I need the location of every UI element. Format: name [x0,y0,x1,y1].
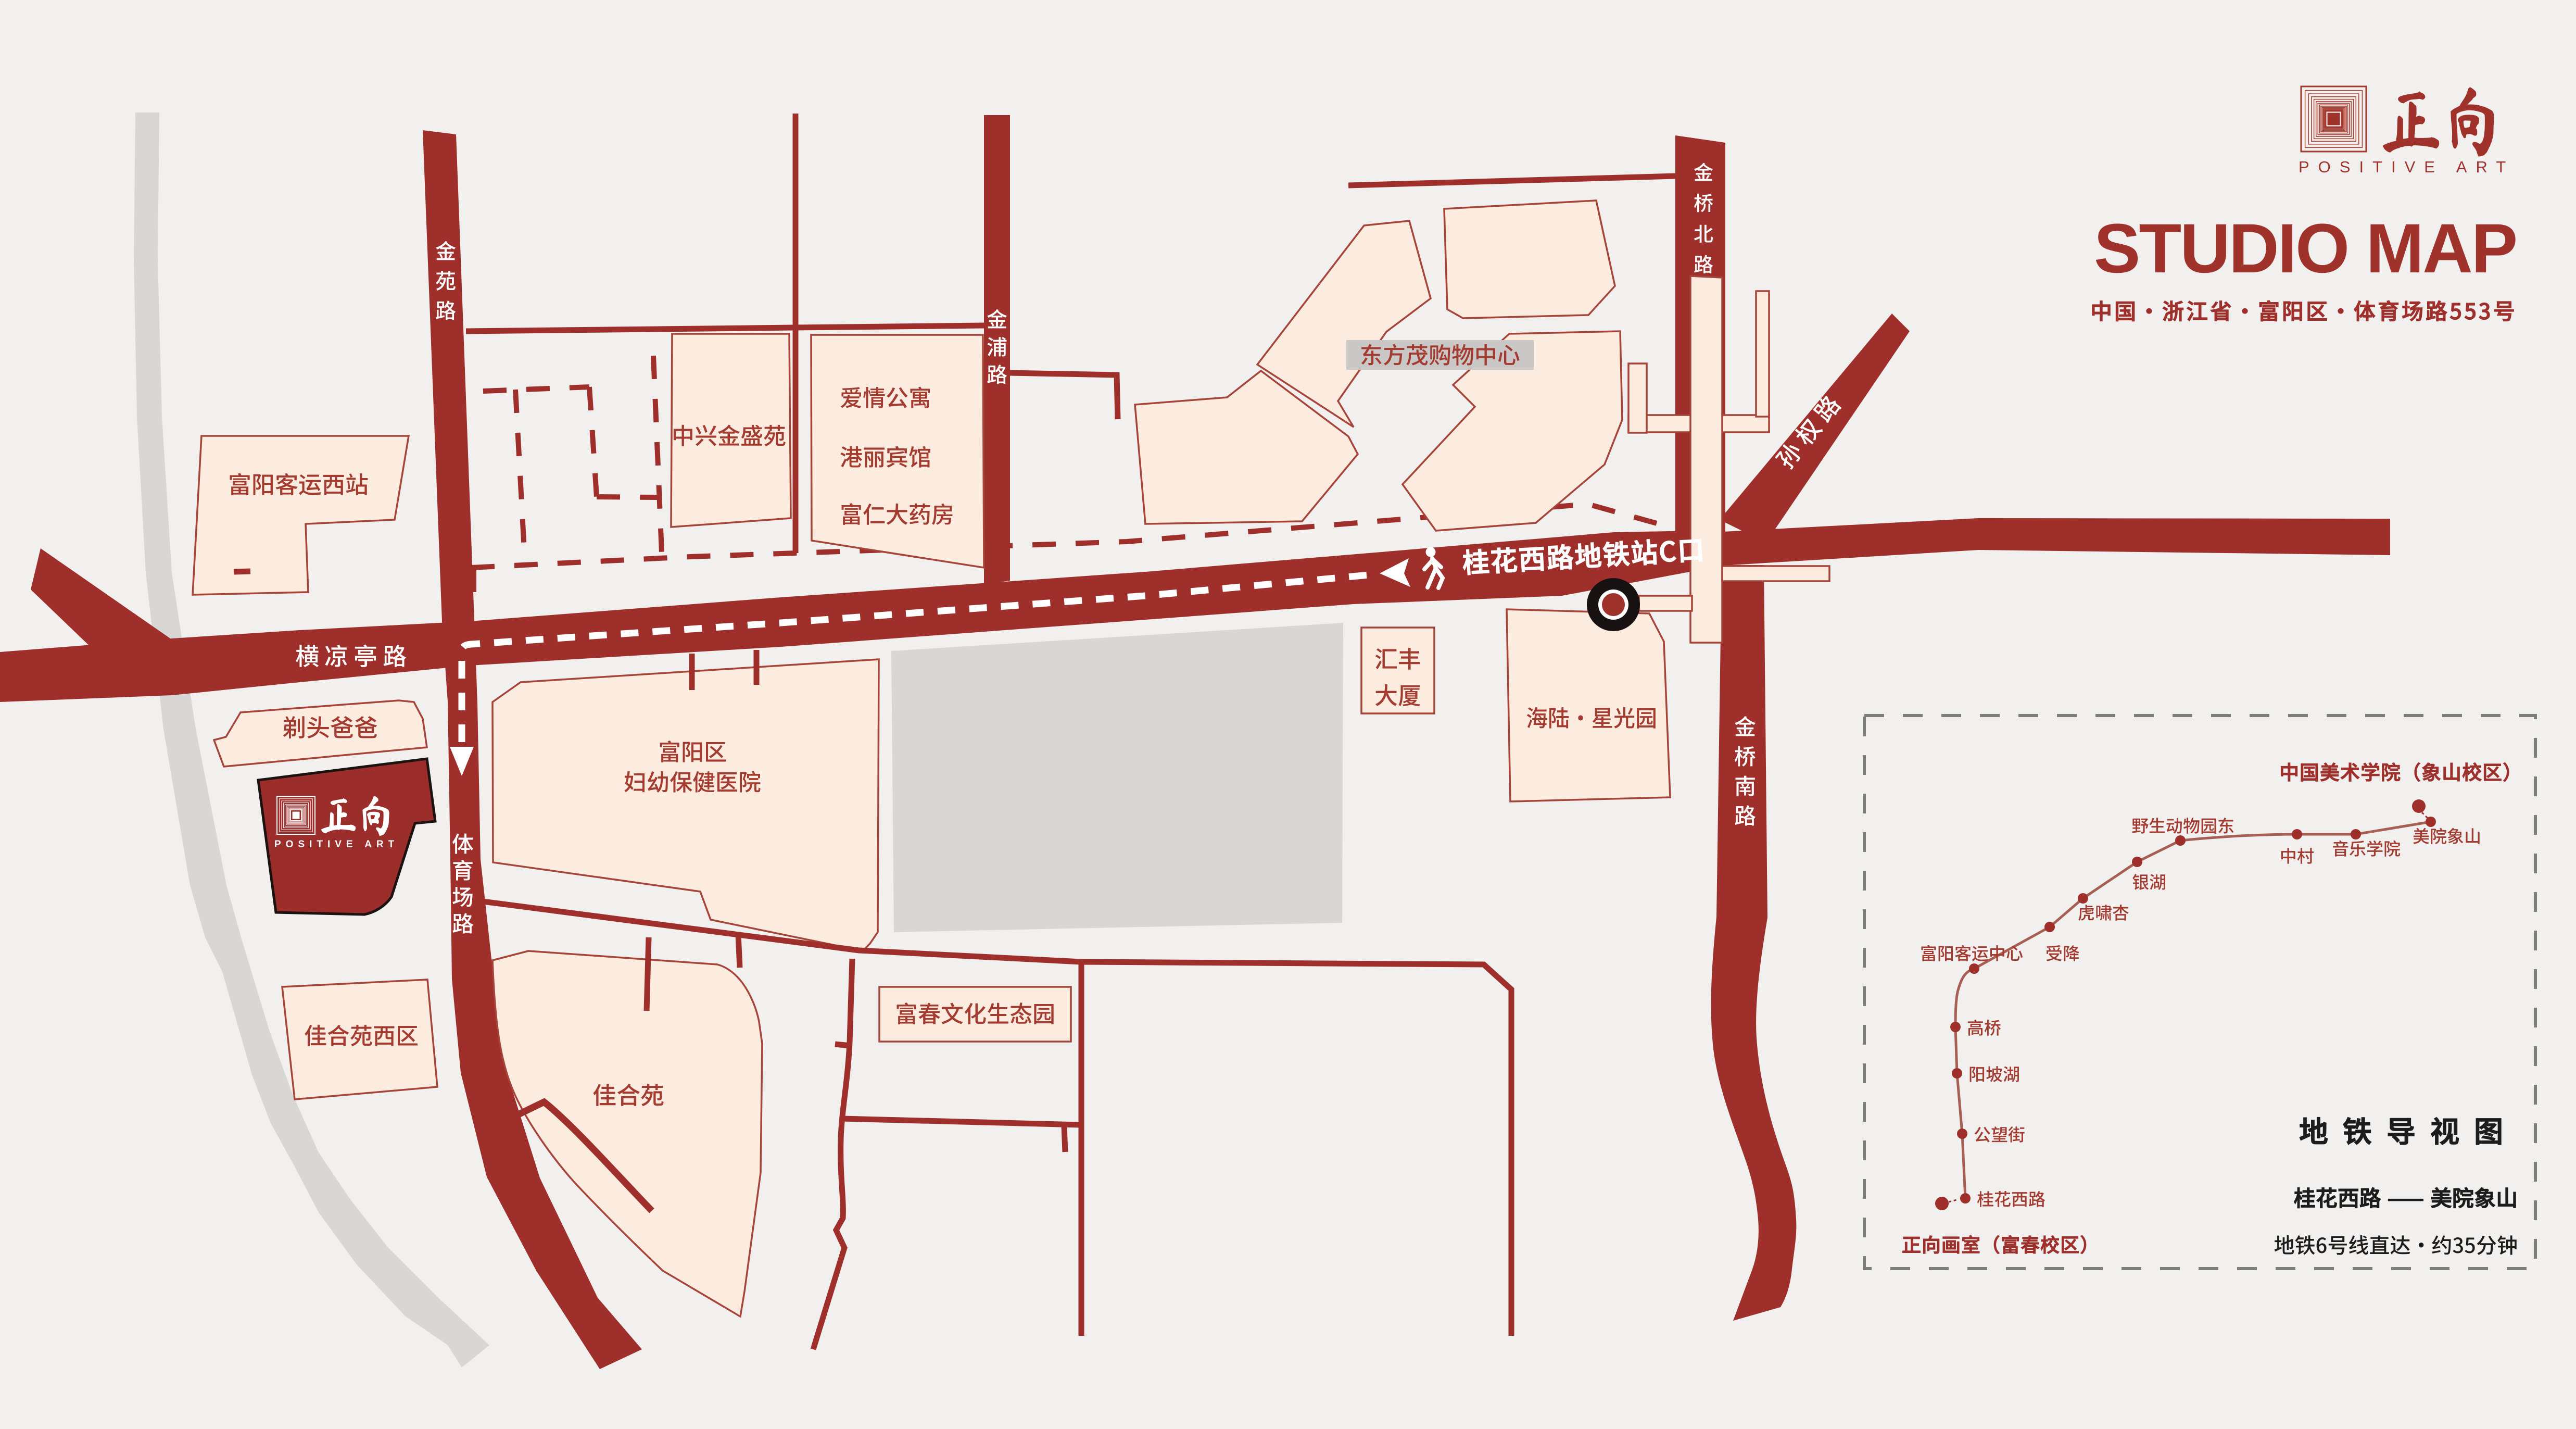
svg-text:银湖: 银湖 [2132,869,2166,894]
svg-text:地铁6号线直达·约35分钟: 地铁6号线直达·约35分钟 [2274,1229,2518,1259]
svg-text:路: 路 [1734,799,1756,831]
svg-text:虎啸杏: 虎啸杏 [2078,899,2129,924]
svg-text:公望街: 公望街 [1974,1121,2025,1146]
svg-text:横凉亭路: 横凉亭路 [295,638,412,672]
svg-text:美院象山: 美院象山 [2413,823,2481,848]
svg-text:富春文化生态园: 富春文化生态园 [895,996,1055,1029]
svg-text:地铁导视图: 地铁导视图 [2299,1109,2518,1151]
svg-text:海陆·星光园: 海陆·星光园 [1526,700,1657,733]
svg-text:苑: 苑 [435,265,456,295]
svg-text:金: 金 [1734,710,1756,742]
svg-text:东方茂购物中心: 东方茂购物中心 [1360,337,1520,370]
svg-text:中国·浙江省·富阳区·体育场路553号: 中国·浙江省·富阳区·体育场路553号 [2090,294,2517,326]
svg-text:北: 北 [1694,218,1713,247]
svg-text:中兴金盛苑: 中兴金盛苑 [672,418,786,451]
svg-text:南: 南 [1734,769,1756,801]
svg-text:富阳客运西站: 富阳客运西站 [228,466,369,500]
svg-text:桂花西路 —— 美院象山: 桂花西路 —— 美院象山 [2293,1181,2518,1213]
svg-text:中村: 中村 [2280,843,2314,868]
svg-text:妇幼保健医院: 妇幼保健医院 [624,764,761,797]
svg-text:剃头爸爸: 剃头爸爸 [282,709,378,744]
svg-text:富仁大药房: 富仁大药房 [840,496,954,530]
svg-text:正向: 正向 [2380,81,2503,159]
svg-text:富阳客运中心: 富阳客运中心 [1920,940,2023,965]
svg-text:爱情公寓: 爱情公寓 [840,380,931,413]
svg-text:路: 路 [1694,249,1713,278]
svg-text:POSITIVE ART: POSITIVE ART [274,839,399,850]
svg-text:路: 路 [435,294,456,324]
svg-text:高桥: 高桥 [1967,1014,2001,1039]
svg-text:大厦: 大厦 [1374,677,1421,711]
svg-text:音乐学院: 音乐学院 [2332,835,2401,860]
svg-text:桥: 桥 [1734,739,1756,771]
svg-text:港丽宾馆: 港丽宾馆 [840,439,931,472]
svg-text:正向: 正向 [320,793,395,837]
svg-text:路: 路 [452,907,474,938]
svg-text:野生动物园东: 野生动物园东 [2131,812,2234,837]
svg-text:阳坡湖: 阳坡湖 [1968,1061,2020,1086]
svg-text:汇丰: 汇丰 [1374,641,1421,674]
svg-text:金: 金 [1694,157,1713,185]
svg-text:金: 金 [435,235,456,265]
svg-text:中国美术学院（象山校区）: 中国美术学院（象山校区） [2279,757,2523,785]
svg-text:正向画室（富春校区）: 正向画室（富春校区） [1902,1230,2100,1258]
svg-text:路: 路 [987,358,1007,388]
svg-text:佳合苑西区: 佳合苑西区 [304,1018,419,1051]
svg-text:STUDIO MAP: STUDIO MAP [2094,210,2516,287]
svg-text:受降: 受降 [2045,940,2080,965]
svg-text:佳合苑: 佳合苑 [592,1077,664,1111]
svg-text:富阳区: 富阳区 [658,734,727,767]
svg-text:桂花西路: 桂花西路 [1977,1186,2045,1211]
svg-text:桥: 桥 [1694,187,1713,216]
svg-text:POSITIVE ART: POSITIVE ART [2299,158,2515,176]
svg-text:浦: 浦 [987,331,1007,361]
svg-text:金: 金 [987,303,1007,333]
